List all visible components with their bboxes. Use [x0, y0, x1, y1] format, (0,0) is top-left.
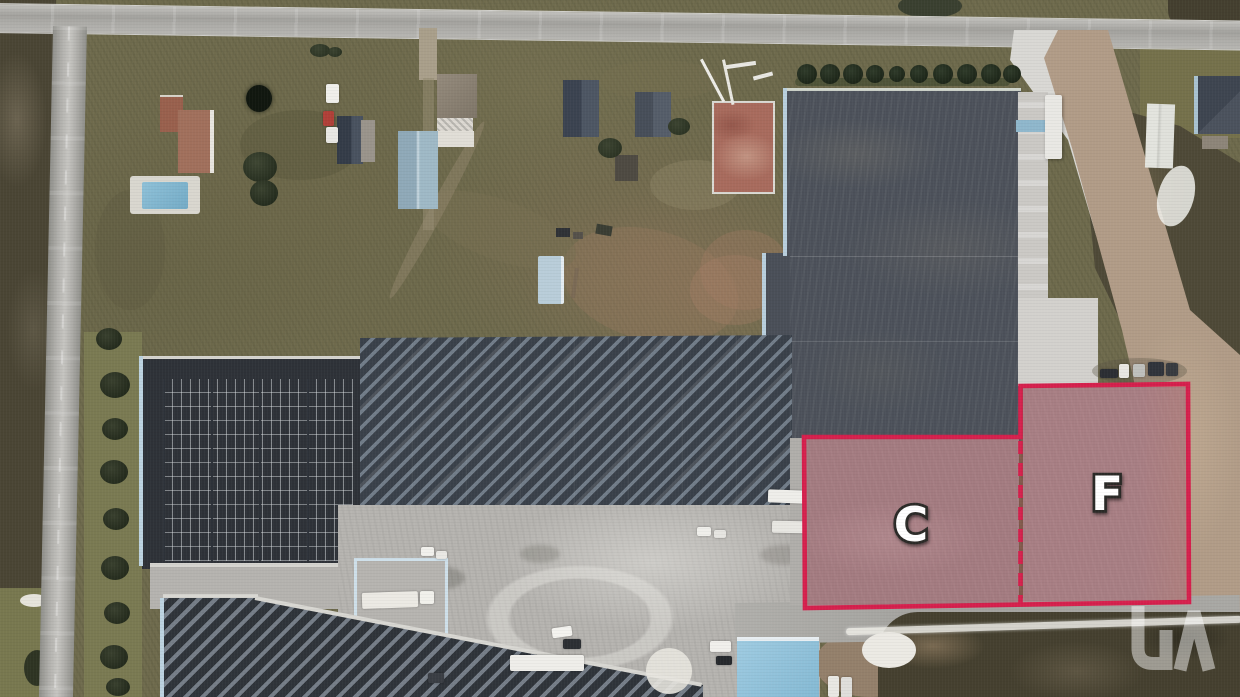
brand-watermark-logo — [0, 0, 1240, 697]
watermark-a-shape — [1180, 612, 1209, 670]
aerial-photo-canvas: C F — [0, 0, 1240, 697]
watermark-u-shape — [1138, 606, 1166, 664]
